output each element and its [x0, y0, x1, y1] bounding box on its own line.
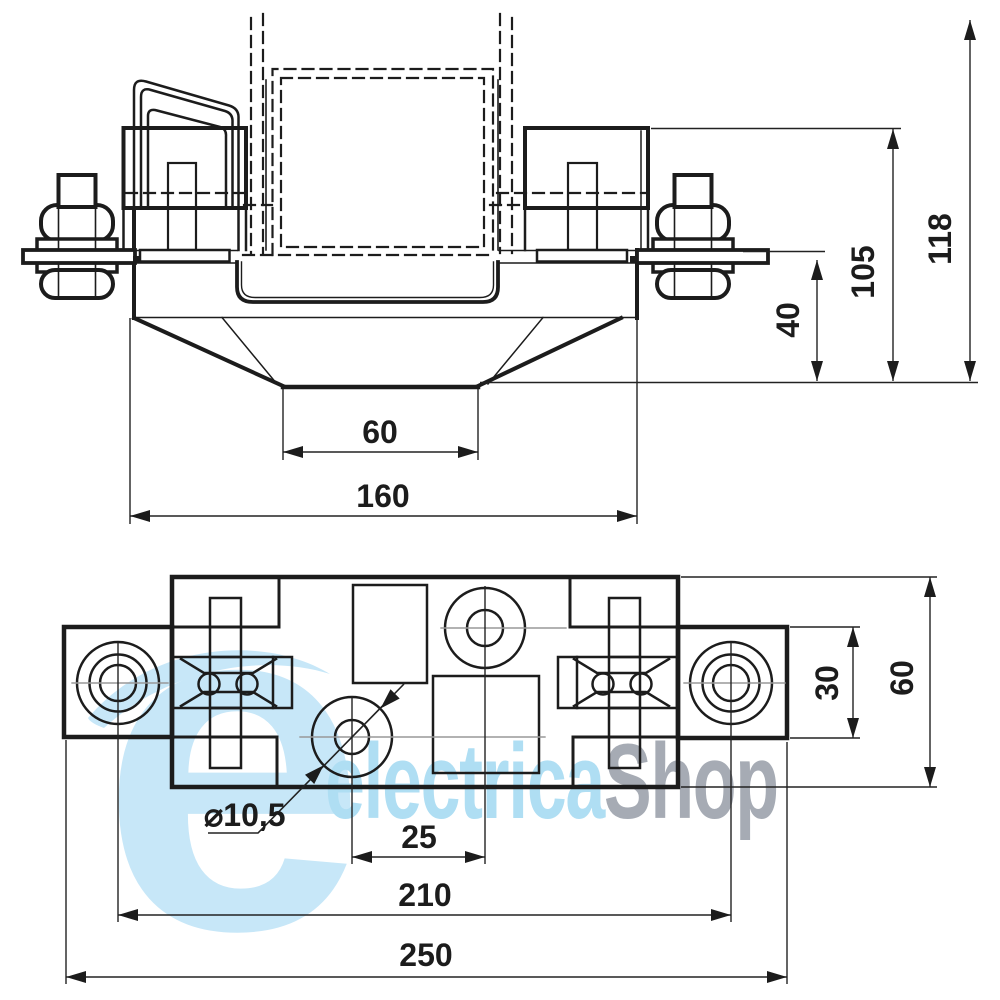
molded-base-body — [124, 208, 649, 388]
dim-overall-width-label: 160 — [356, 478, 409, 514]
technical-drawing-page: e electricaShop — [0, 0, 1000, 1000]
clamp-base-plates — [140, 250, 627, 262]
dim-overall-length-label: 250 — [399, 937, 452, 973]
fuse-holder-drawing: e electricaShop — [0, 0, 1000, 1000]
fuse-handle-wedge — [134, 81, 239, 250]
dim-clamp-height-label: 105 — [845, 245, 881, 298]
dim-overall-height-label: 118 — [922, 213, 958, 265]
dim-hole-diameter-label: ⌀10,5 — [204, 797, 286, 833]
dim-pad-width-label: 30 — [809, 665, 845, 701]
right-clamp — [525, 128, 648, 250]
dim-hole-spacing-label: 25 — [401, 819, 437, 855]
dim-body-depth-label: 60 — [884, 660, 920, 696]
dim-busbar-height-label: 40 — [770, 302, 806, 338]
fuse-blade-lines — [266, 80, 498, 250]
front-view — [23, 14, 768, 387]
dim-mount-spacing-label: 210 — [398, 877, 451, 913]
brand-second-word: Shop — [604, 723, 778, 842]
busbar-strips — [23, 250, 768, 263]
dim-base-width-label: 60 — [362, 414, 398, 450]
brand-first-word: electrica — [325, 723, 606, 842]
